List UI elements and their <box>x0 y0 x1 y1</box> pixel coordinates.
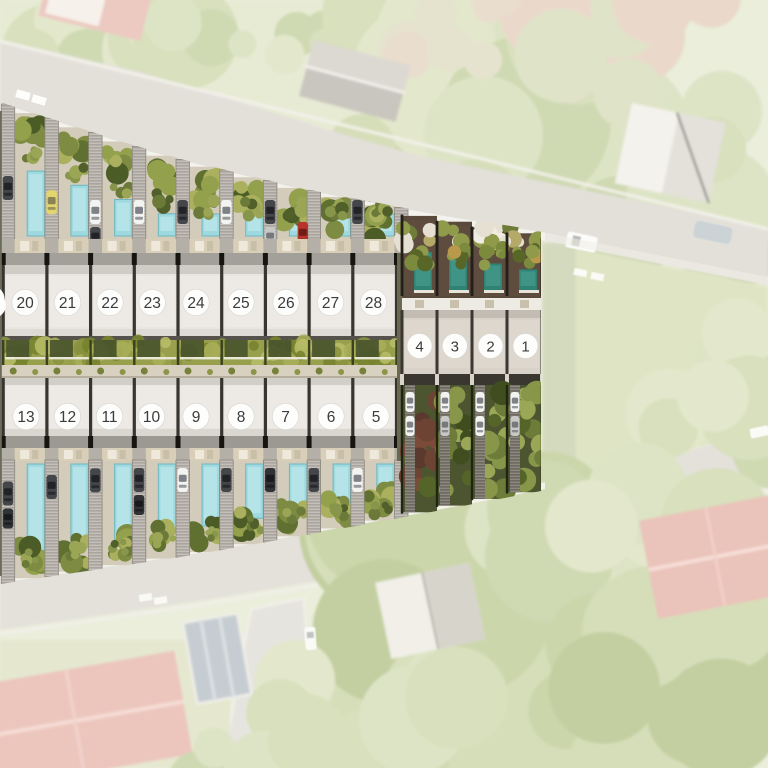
svg-text:27: 27 <box>322 295 339 312</box>
svg-text:9: 9 <box>192 409 201 426</box>
svg-text:3: 3 <box>451 338 459 355</box>
svg-text:22: 22 <box>101 295 118 312</box>
svg-text:8: 8 <box>237 409 246 426</box>
svg-text:11: 11 <box>101 409 117 426</box>
svg-text:26: 26 <box>277 295 294 312</box>
svg-text:6: 6 <box>327 409 336 426</box>
svg-text:4: 4 <box>415 338 423 355</box>
svg-text:28: 28 <box>365 295 382 312</box>
svg-text:7: 7 <box>281 409 290 426</box>
svg-text:2: 2 <box>486 338 494 355</box>
svg-text:23: 23 <box>144 295 161 312</box>
svg-text:10: 10 <box>143 409 161 426</box>
svg-text:25: 25 <box>232 295 249 312</box>
svg-text:5: 5 <box>372 409 381 426</box>
svg-text:1: 1 <box>521 338 529 355</box>
svg-text:21: 21 <box>59 295 76 312</box>
svg-text:20: 20 <box>16 295 34 312</box>
svg-text:12: 12 <box>59 409 76 426</box>
svg-text:24: 24 <box>187 295 205 312</box>
svg-text:13: 13 <box>17 409 34 426</box>
